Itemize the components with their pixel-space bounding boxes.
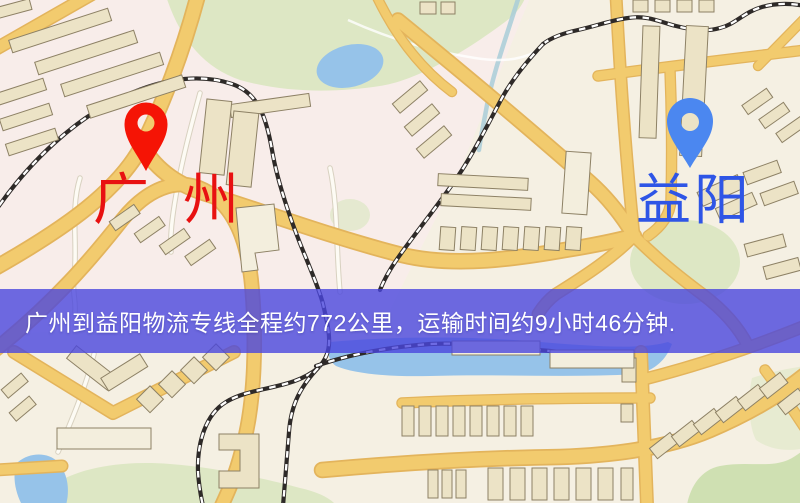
destination-label: 益阳 <box>636 173 752 228</box>
route-map-image: 广州 益阳 广州到益阳物流专线全程约772公里，运输时间约9小时46分钟. <box>0 0 800 503</box>
map-canvas <box>0 0 800 503</box>
origin-label: 广州 <box>93 173 273 229</box>
route-banner: 广州到益阳物流专线全程约772公里，运输时间约9小时46分钟. <box>0 289 800 353</box>
route-banner-text: 广州到益阳物流专线全程约772公里，运输时间约9小时46分钟. <box>0 304 676 338</box>
